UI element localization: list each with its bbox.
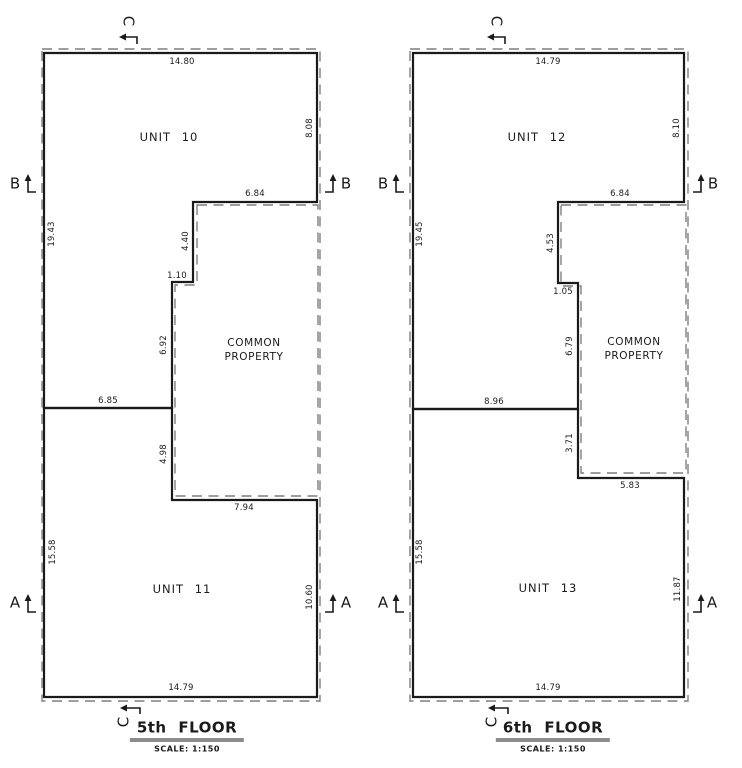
dim-cp-side-upper: 6.92 — [160, 335, 169, 355]
dim-top: 14.79 — [535, 58, 560, 67]
section-arrow-b-right-icon — [693, 174, 704, 192]
section-arrow-c-bottom-icon — [120, 705, 140, 715]
dim-notch-drop: 4.40 — [182, 231, 191, 251]
section-marker-c-top: C — [489, 16, 504, 26]
common-property-line2: PROPERTY — [604, 349, 663, 363]
dim-left-upper: 19.43 — [48, 221, 57, 246]
dim-cp-side-lower: 3.71 — [566, 433, 575, 453]
section-marker-b-left: B — [378, 177, 388, 192]
dim-left-lower: 15.58 — [49, 539, 58, 564]
dim-step: 1.10 — [167, 272, 187, 281]
unit-label-bottom: UNIT 13 — [519, 581, 578, 595]
section-arrow-a-right-icon — [693, 594, 704, 612]
dim-divider: 6.85 — [98, 397, 118, 406]
unit-13-boundary — [413, 409, 684, 697]
dim-divider: 8.96 — [484, 398, 504, 407]
common-property-line1: COMMON — [604, 335, 663, 349]
section-marker-a-left: A — [10, 596, 20, 611]
floor-plan-sheet: 14.80 8.08 6.84 4.40 1.10 6.92 6.85 4.98… — [0, 0, 742, 768]
common-property-line1: COMMON — [224, 336, 283, 350]
parcel-boundary-dashed — [42, 49, 320, 701]
section-arrow-a-left-icon — [393, 594, 404, 612]
dim-cp-side-upper: 6.79 — [566, 336, 575, 356]
section-arrow-c-top-icon — [487, 34, 505, 45]
scale-label: SCALE: 1:150 — [520, 745, 586, 754]
floor-title: 5th FLOOR — [130, 719, 244, 742]
common-property-label: COMMON PROPERTY — [224, 336, 283, 364]
dim-cp-bottom: 5.83 — [620, 482, 640, 491]
dim-right-upper: 8.08 — [306, 118, 315, 138]
unit-label-bottom: UNIT 11 — [153, 582, 212, 596]
dim-bottom: 14.79 — [535, 684, 560, 693]
unit-label-top: UNIT 12 — [508, 130, 567, 144]
plan-6th-floor: 14.79 8.10 6.84 4.53 1.05 6.79 8.96 3.71… — [368, 0, 739, 768]
dim-bottom: 14.79 — [168, 684, 193, 693]
dim-left-lower: 15.58 — [416, 539, 425, 564]
section-marker-a-right: A — [341, 596, 351, 611]
dim-left-upper: 19.45 — [416, 221, 425, 246]
section-arrow-c-bottom-icon — [488, 705, 508, 715]
floor-title-block: 5th FLOOR — [130, 719, 244, 742]
section-marker-b-right: B — [708, 177, 718, 192]
scale-label: SCALE: 1:150 — [154, 745, 220, 754]
unit-11-boundary — [44, 408, 317, 697]
floor-title: 6th FLOOR — [496, 719, 610, 742]
section-arrow-c-top-icon — [119, 34, 137, 45]
common-property-label: COMMON PROPERTY — [604, 335, 663, 363]
section-arrow-b-left-icon — [393, 174, 404, 192]
dim-right-lower: 11.87 — [674, 576, 683, 601]
section-marker-a-left: A — [378, 596, 388, 611]
floor-title-block: 6th FLOOR — [496, 719, 610, 742]
plan-5th-floor-drawing — [0, 0, 371, 768]
section-arrow-b-right-icon — [325, 174, 336, 192]
dim-right-lower: 10.60 — [306, 584, 315, 609]
section-marker-b-left: B — [10, 177, 20, 192]
section-marker-b-right: B — [341, 177, 351, 192]
section-arrow-a-left-icon — [25, 594, 36, 612]
dim-notch-width: 6.84 — [245, 190, 265, 199]
common-property-line2: PROPERTY — [224, 350, 283, 364]
dim-cp-side-lower: 4.98 — [160, 444, 169, 464]
dim-notch-width: 6.84 — [610, 190, 630, 199]
section-marker-c-top: C — [121, 16, 136, 26]
section-marker-a-right: A — [707, 596, 717, 611]
plan-5th-floor: 14.80 8.08 6.84 4.40 1.10 6.92 6.85 4.98… — [0, 0, 371, 768]
dim-step: 1.05 — [553, 288, 573, 297]
dim-notch-drop: 4.53 — [547, 233, 556, 253]
unit-label-top: UNIT 10 — [140, 130, 199, 144]
parcel-boundary-dashed — [410, 49, 688, 701]
plan-6th-floor-drawing — [368, 0, 739, 768]
dim-cp-bottom: 7.94 — [234, 504, 254, 513]
dim-right-upper: 8.10 — [673, 118, 682, 138]
section-arrow-b-left-icon — [25, 174, 36, 192]
section-arrow-a-right-icon — [325, 594, 336, 612]
dim-top: 14.80 — [169, 58, 194, 67]
